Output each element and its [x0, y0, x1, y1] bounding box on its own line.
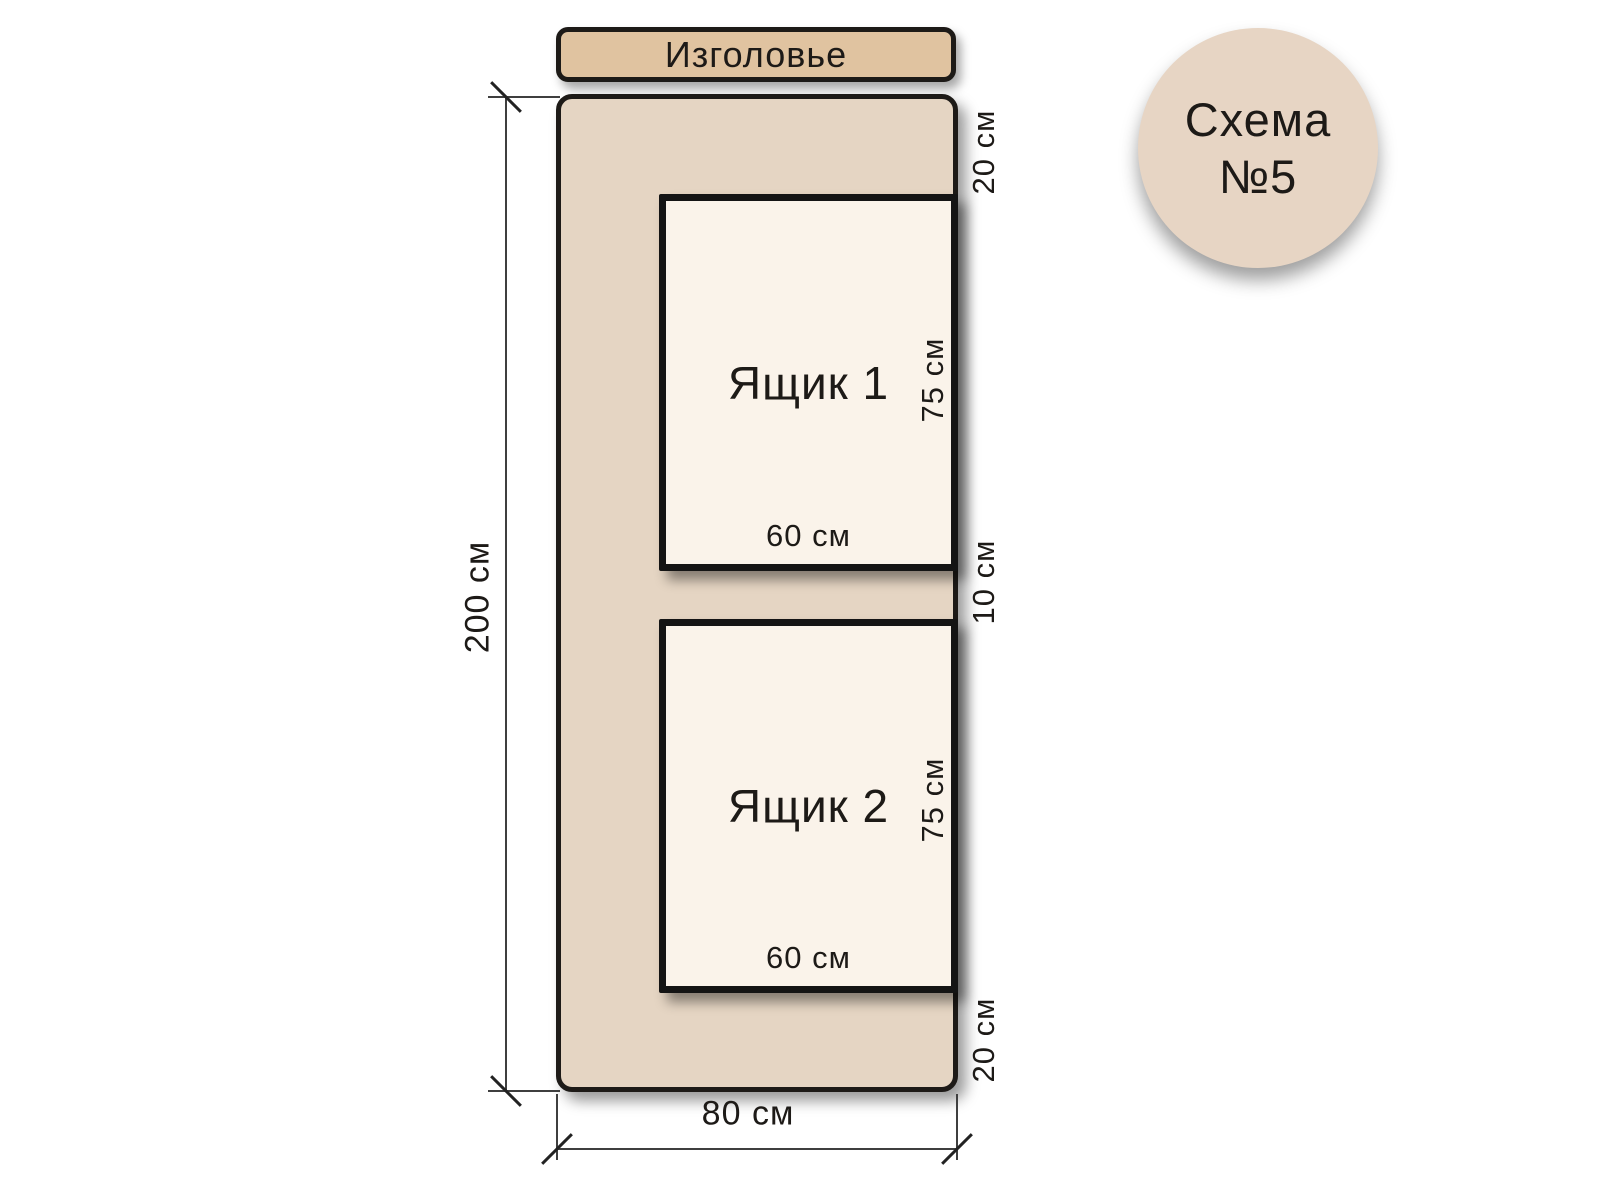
width-dimension-line	[556, 1148, 958, 1150]
top-offset-label: 20 см	[966, 110, 1002, 195]
drawer-1-height-label: 75 см	[915, 338, 951, 423]
drawer-2-box: Ящик 2 60 см	[659, 619, 958, 993]
bottom-offset-label: 20 см	[966, 998, 1002, 1083]
height-dimension-bottom-extension	[488, 1090, 560, 1092]
drawer-2-width-label: 60 см	[666, 940, 951, 976]
height-dimension-top-extension	[488, 96, 560, 98]
drawer-1-width-label: 60 см	[666, 518, 951, 554]
scheme-diagram: Изголовье Ящик 1 60 см Ящик 2 60 см 75 с…	[0, 0, 1600, 1200]
drawer-1-label: Ящик 1	[666, 201, 951, 564]
height-dimension-line	[505, 96, 507, 1092]
scheme-badge-line1: Схема	[1185, 91, 1332, 148]
headboard-label: Изголовье	[665, 34, 847, 76]
bed-height-label: 200 см	[459, 541, 498, 654]
scheme-badge-line2: №5	[1219, 148, 1298, 205]
scheme-badge: Схема №5	[1138, 28, 1378, 268]
drawer-2-label: Ящик 2	[666, 626, 951, 986]
drawer-2-height-label: 75 см	[915, 758, 951, 843]
middle-gap-label: 10 см	[966, 540, 1002, 625]
headboard-box: Изголовье	[556, 27, 956, 82]
bed-width-label: 80 см	[702, 1095, 795, 1134]
drawer-1-box: Ящик 1 60 см	[659, 194, 958, 571]
